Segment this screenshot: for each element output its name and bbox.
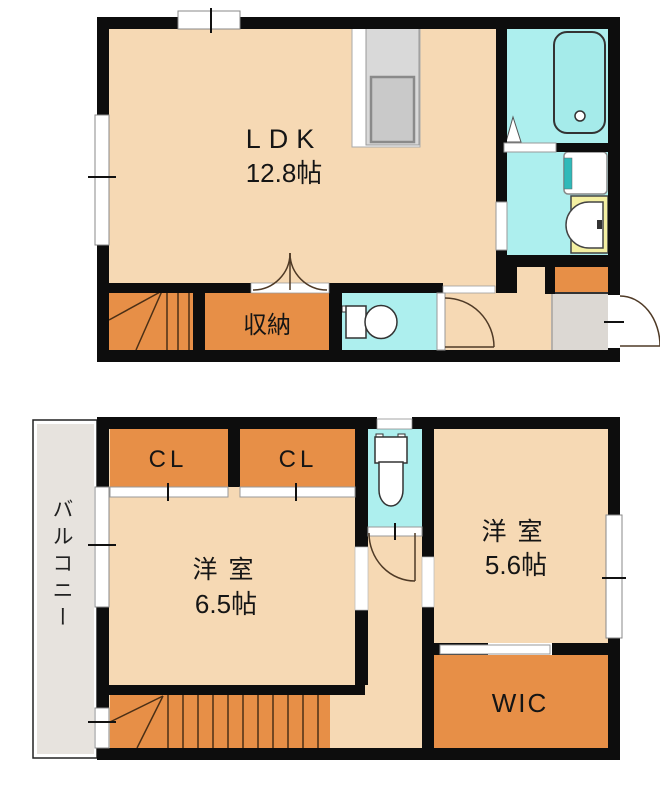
wall-segment <box>97 417 377 429</box>
washroom-sliding-door <box>496 202 507 250</box>
floor2-plan: CL CL 洋 室 6.5帖 洋 室 5.6帖 WIC <box>33 417 626 760</box>
wall-segment <box>228 429 240 487</box>
window-toilet-f2 <box>377 419 412 429</box>
hall-door-frame <box>443 286 495 293</box>
wall-segment <box>556 143 608 152</box>
wall-segment <box>97 245 109 362</box>
wall-segment <box>545 260 555 294</box>
washer-tap <box>564 158 572 189</box>
room65-door-opening <box>355 547 368 610</box>
room-second-label: 洋 室 <box>482 518 545 546</box>
wall-segment <box>97 17 178 29</box>
entrance-genkan <box>553 294 608 350</box>
kitchen-sink <box>371 77 414 142</box>
wall-segment <box>552 643 608 655</box>
wall-segment <box>193 293 205 350</box>
wall-segment <box>97 748 620 760</box>
closet-right-sliding-door <box>240 487 355 497</box>
window-left-lower-f2 <box>95 708 109 748</box>
wic-sliding-door <box>440 645 550 654</box>
room-main-size: 6.5帖 <box>195 589 257 619</box>
wall-segment <box>608 638 620 760</box>
wall-segment <box>422 655 434 748</box>
wall-segment <box>412 417 620 429</box>
wall-segment <box>496 255 620 267</box>
room56-door-opening <box>422 557 434 607</box>
floor1-plan: LDK 12.8帖 収納 <box>88 8 660 362</box>
wall-segment <box>103 283 251 293</box>
closet-right-label: CL <box>279 446 318 473</box>
entry-door-arc <box>620 296 660 346</box>
room-second-size: 5.6帖 <box>485 550 547 580</box>
wall-segment <box>97 17 109 115</box>
shoe-cabinet <box>555 267 608 294</box>
wic-label: WIC <box>492 688 549 718</box>
wall-segment <box>496 23 507 202</box>
wall-segment <box>240 17 620 29</box>
wall-segment <box>608 17 620 295</box>
ldk-label: LDK <box>246 124 323 154</box>
wall-segment <box>496 267 517 293</box>
floorplan-drawing: LDK 12.8帖 収納 <box>0 0 660 800</box>
genkan-step-line <box>551 294 553 350</box>
wall-segment <box>97 685 365 695</box>
wall-segment <box>97 350 620 362</box>
stairs-f2 <box>110 695 330 748</box>
balcony-label: バルコニー <box>46 498 76 678</box>
window-top <box>178 11 240 29</box>
wall-segment <box>355 610 368 685</box>
toilet-bowl-f2 <box>379 462 403 506</box>
stairs-f1 <box>109 293 193 350</box>
closet-left-label: CL <box>149 446 188 473</box>
wall-segment <box>97 417 109 487</box>
bath-sliding-door <box>504 143 556 152</box>
toilet-sliding-door-f1 <box>437 293 445 350</box>
toilet-tank-f1 <box>346 306 366 338</box>
wall-segment <box>329 283 342 350</box>
room-main-label: 洋 室 <box>193 556 256 584</box>
storage-label: 収納 <box>243 312 291 339</box>
window-right-f2 <box>606 515 622 638</box>
ldk-size-label: 12.8帖 <box>246 158 323 188</box>
window-left <box>95 115 109 245</box>
toilet-bowl-f1 <box>365 306 397 339</box>
wall-segment <box>608 348 620 362</box>
floorplan-page: LDK 12.8帖 収納 <box>0 0 660 800</box>
bathtub-drain <box>575 111 585 121</box>
vanity-faucet <box>597 220 602 229</box>
wall-segment <box>329 283 443 293</box>
wall-segment <box>422 417 434 557</box>
toilet-tank-f2 <box>375 437 407 463</box>
wall-segment <box>608 417 620 515</box>
wall-segment <box>355 497 368 547</box>
window-left-f2 <box>95 487 109 607</box>
